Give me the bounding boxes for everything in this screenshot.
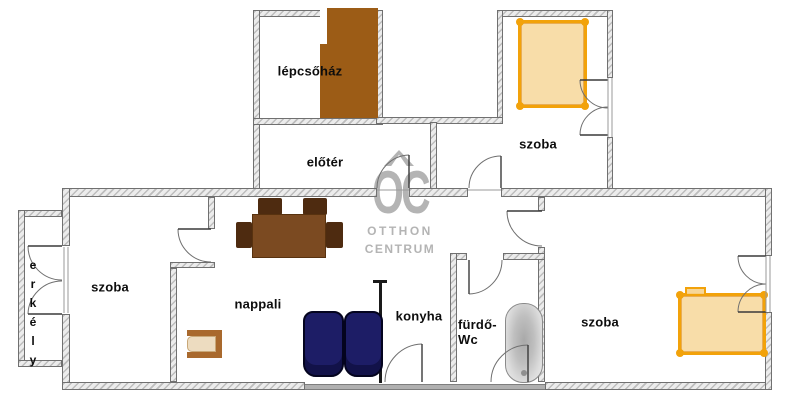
- kitchen-partition-cap: [373, 280, 387, 283]
- dining-chair-icon: [303, 198, 327, 215]
- pillow-icon: [685, 287, 706, 296]
- room-label-erkely: erkély: [26, 258, 40, 372]
- wall-segment: [765, 188, 772, 256]
- door-arc: [385, 344, 422, 382]
- room-label-szoba-left: szoba: [91, 280, 129, 295]
- wall-segment: [450, 253, 457, 382]
- wall-segment: [18, 360, 62, 367]
- bathtub-drain: [521, 370, 527, 376]
- wall-segment: [62, 188, 377, 197]
- room-label-konyha: konyha: [396, 309, 443, 324]
- wall-segment: [62, 314, 70, 390]
- wall-segment: [18, 210, 25, 367]
- bed-icon: [518, 20, 587, 108]
- wall-segment: [62, 382, 305, 390]
- watermark-line1: OTTHON: [0, 224, 800, 238]
- bed-corner-dot: [516, 18, 524, 26]
- wall-segment: [430, 122, 437, 197]
- room-label-nappali: nappali: [235, 297, 282, 312]
- sofa-icon: [303, 311, 383, 378]
- bed-corner-dot: [516, 102, 524, 110]
- wall-segment: [607, 10, 613, 78]
- room-label-lepcsohaz: lépcsőház: [278, 64, 343, 79]
- wall-segment: [208, 197, 215, 229]
- terrace-threshold: [305, 384, 545, 390]
- armchair-cushion: [187, 336, 216, 352]
- room-label-szoba-right: szoba: [581, 315, 619, 330]
- room-label-szoba-top: szoba: [519, 137, 557, 152]
- bed-icon: [678, 293, 766, 355]
- room-label-furdo: fürdő- Wc: [458, 317, 497, 347]
- bed-corner-dot: [676, 291, 684, 299]
- dining-chair-icon: [326, 222, 343, 248]
- armchair-back: [215, 333, 222, 355]
- door-arc: [738, 256, 766, 284]
- wall-segment: [376, 117, 503, 124]
- wall-segment: [503, 253, 545, 260]
- room-label-furdo-line2: Wc: [458, 332, 497, 347]
- bed-corner-dot: [760, 291, 768, 299]
- wall-segment: [497, 10, 613, 17]
- armchair-icon: [187, 330, 222, 358]
- bed-corner-dot: [676, 349, 684, 357]
- sofa-cushion: [344, 311, 383, 377]
- bathtub-icon: [505, 303, 543, 383]
- dining-chair-icon: [236, 222, 252, 248]
- wall-segment: [253, 10, 260, 197]
- wall-segment: [545, 382, 772, 390]
- wall-segment: [501, 188, 772, 197]
- dining-chair-icon: [258, 198, 282, 215]
- staircase-landing: [320, 8, 327, 44]
- door-arc: [580, 107, 608, 135]
- wall-segment: [253, 118, 383, 125]
- dining-table-icon: [252, 214, 326, 258]
- bed-corner-dot: [581, 102, 589, 110]
- sofa-cushion: [303, 311, 344, 377]
- floor-plan: OC OTTHON CENTRUM: [0, 0, 800, 415]
- wall-segment: [497, 10, 503, 118]
- wall-segment: [538, 197, 545, 211]
- bed-corner-dot: [581, 18, 589, 26]
- room-label-eloter: előtér: [307, 155, 344, 170]
- wall-segment: [409, 188, 468, 197]
- wall-segment: [62, 188, 70, 246]
- door-arc: [469, 260, 502, 294]
- watermark-line2: CENTRUM: [0, 242, 800, 256]
- wall-segment: [170, 268, 177, 382]
- bed-corner-dot: [760, 349, 768, 357]
- room-label-furdo-line1: fürdő-: [458, 317, 497, 332]
